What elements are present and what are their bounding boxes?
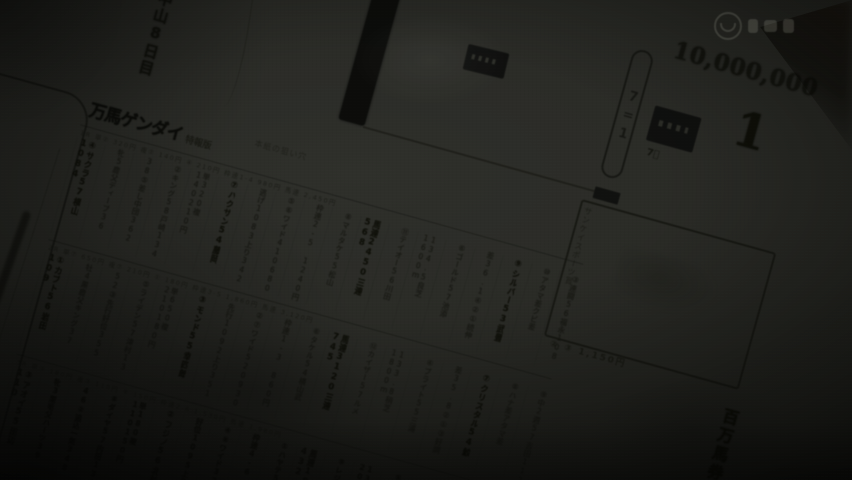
watermark-text-blur: [764, 20, 777, 32]
top-left-vertical-headline: 第5回中山8日目: [126, 0, 192, 97]
reversed-text-dots: [471, 54, 497, 65]
masthead-subtitle: 特報版: [184, 135, 213, 152]
newspaper-page: 第5回中山8日目 万馬ゲンダイ特報版 本紙の狙い穴 払戻金一覧表 1R 単② 3…: [0, 0, 852, 480]
headline-big-digit: 1: [727, 100, 774, 163]
race-combination-capsule: 7=1: [599, 48, 655, 181]
top-curved-rule: [214, 0, 257, 109]
watermark-text-blur: [783, 19, 794, 33]
right-box-tab: [592, 186, 620, 205]
bottom-right-vertical-headline: 百万馬券続出: [652, 404, 743, 480]
reversed-text-dots: [658, 120, 689, 134]
section-divider-rule: [363, 126, 606, 195]
reversed-payout-block: [646, 105, 702, 153]
small-payout-marks: 7ﾞ: [645, 147, 660, 161]
small-reversed-text-block: [463, 44, 510, 79]
watermark-text-blur: [748, 19, 758, 33]
watermark-logo-icon: [714, 12, 742, 40]
broadcaster-watermark: [714, 10, 810, 42]
black-column-banner: 払戻金一覧表: [338, 0, 422, 126]
dark-newspaper-photo: 第5回中山8日目 万馬ゲンダイ特報版 本紙の狙い穴 払戻金一覧表 1R 単② 3…: [0, 0, 852, 480]
